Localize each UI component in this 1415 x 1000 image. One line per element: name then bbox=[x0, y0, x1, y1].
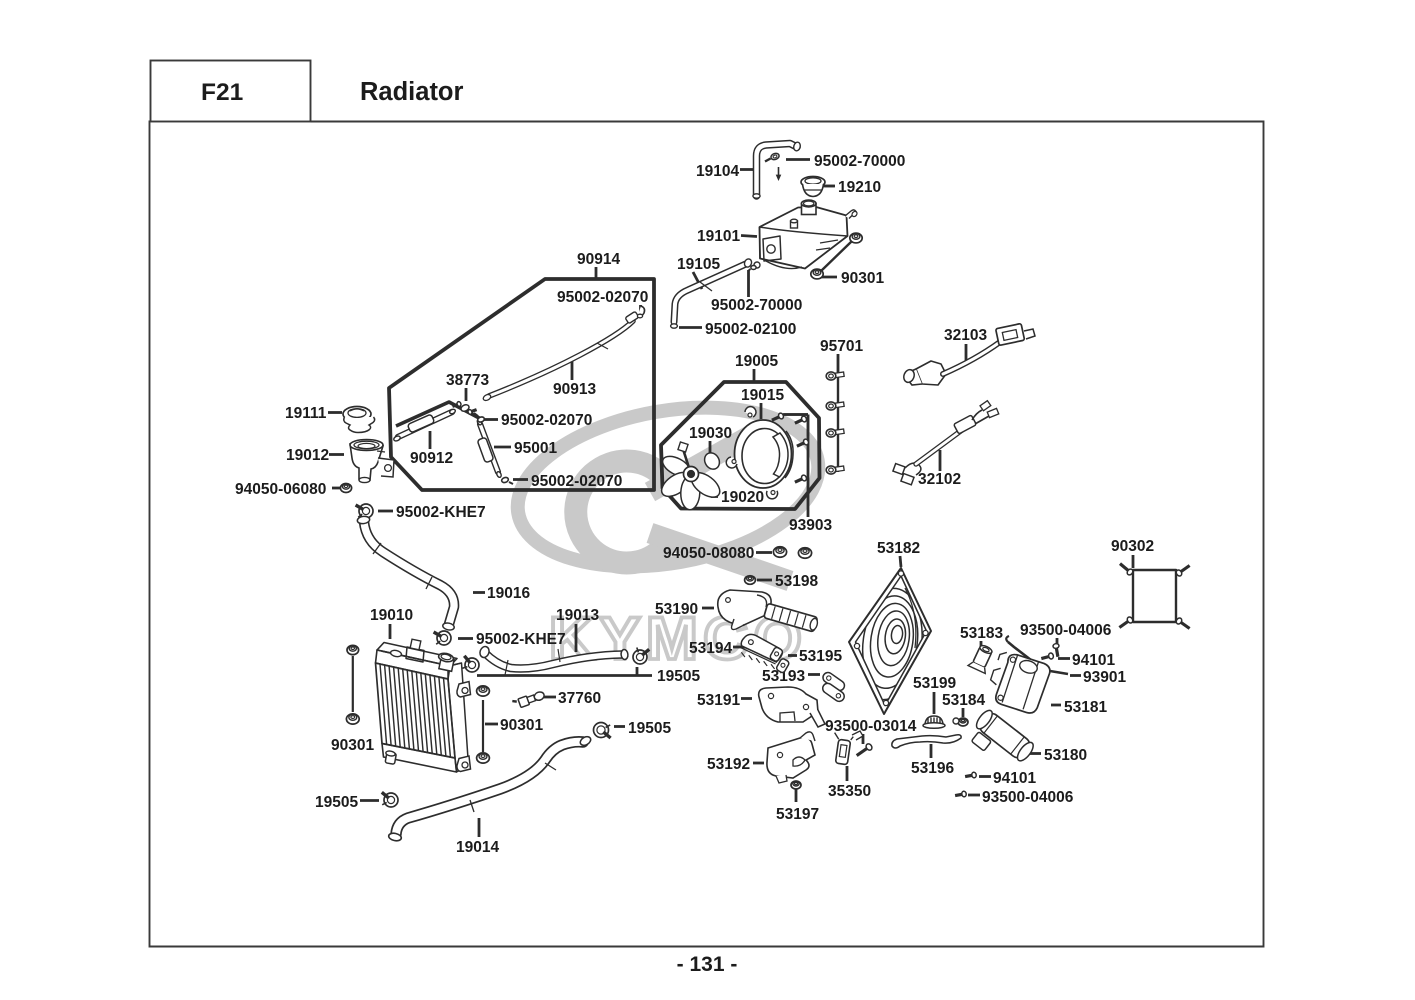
svg-text:19111: 19111 bbox=[285, 405, 327, 422]
svg-text:19010: 19010 bbox=[370, 607, 413, 624]
svg-text:90913: 90913 bbox=[553, 381, 596, 398]
svg-text:90302: 90302 bbox=[1111, 538, 1154, 555]
svg-text:32103: 32103 bbox=[944, 327, 987, 344]
svg-text:38773: 38773 bbox=[446, 372, 489, 389]
svg-text:19020: 19020 bbox=[721, 489, 764, 506]
svg-text:95002-02070: 95002-02070 bbox=[557, 289, 648, 306]
svg-text:90912: 90912 bbox=[410, 450, 453, 467]
svg-text:93903: 93903 bbox=[789, 517, 832, 534]
svg-text:53183: 53183 bbox=[960, 625, 1003, 642]
svg-text:19505: 19505 bbox=[628, 720, 671, 737]
svg-text:19014: 19014 bbox=[456, 839, 499, 856]
svg-text:95002-KHE7: 95002-KHE7 bbox=[396, 504, 486, 521]
svg-text:19105: 19105 bbox=[677, 256, 720, 273]
svg-text:19505: 19505 bbox=[315, 794, 358, 811]
svg-text:53199: 53199 bbox=[913, 675, 956, 692]
svg-text:53192: 53192 bbox=[707, 756, 750, 773]
svg-text:53184: 53184 bbox=[942, 692, 985, 709]
svg-text:53191: 53191 bbox=[697, 692, 740, 709]
svg-text:94101: 94101 bbox=[993, 770, 1036, 787]
svg-text:90914: 90914 bbox=[577, 251, 620, 268]
svg-text:19210: 19210 bbox=[838, 179, 881, 196]
svg-text:93500-04006: 93500-04006 bbox=[1020, 622, 1112, 639]
svg-text:90301: 90301 bbox=[500, 717, 543, 734]
svg-text:93901: 93901 bbox=[1083, 669, 1126, 686]
svg-text:53180: 53180 bbox=[1044, 747, 1087, 764]
svg-text:53197: 53197 bbox=[776, 806, 819, 823]
svg-text:53198: 53198 bbox=[775, 573, 818, 590]
svg-text:19016: 19016 bbox=[487, 585, 530, 602]
svg-text:19101: 19101 bbox=[697, 228, 740, 245]
svg-text:19013: 19013 bbox=[556, 607, 599, 624]
svg-text:95002-02100: 95002-02100 bbox=[705, 321, 796, 338]
svg-text:94050-08080: 94050-08080 bbox=[663, 545, 754, 562]
svg-text:32102: 32102 bbox=[918, 471, 961, 488]
svg-text:95002-70000: 95002-70000 bbox=[814, 153, 905, 170]
svg-text:53196: 53196 bbox=[911, 760, 954, 777]
svg-text:53181: 53181 bbox=[1064, 699, 1107, 716]
svg-text:90301: 90301 bbox=[841, 270, 884, 287]
svg-text:19104: 19104 bbox=[696, 163, 739, 180]
svg-text:19012: 19012 bbox=[286, 447, 329, 464]
svg-text:93500-03014: 93500-03014 bbox=[825, 718, 917, 735]
svg-text:95701: 95701 bbox=[820, 338, 863, 355]
svg-text:90301: 90301 bbox=[331, 737, 374, 754]
svg-text:19505: 19505 bbox=[657, 668, 700, 685]
svg-text:95002-KHE7: 95002-KHE7 bbox=[476, 631, 566, 648]
svg-text:Radiator: Radiator bbox=[360, 78, 464, 106]
svg-text:19030: 19030 bbox=[689, 425, 732, 442]
svg-text:95002-02070: 95002-02070 bbox=[531, 473, 622, 490]
svg-text:53182: 53182 bbox=[877, 540, 920, 557]
svg-text:F21: F21 bbox=[201, 79, 243, 106]
svg-text:95002-70000: 95002-70000 bbox=[711, 297, 802, 314]
svg-text:94050-06080: 94050-06080 bbox=[235, 481, 326, 498]
svg-text:53190: 53190 bbox=[655, 601, 698, 618]
svg-text:53195: 53195 bbox=[799, 648, 842, 665]
svg-text:94101: 94101 bbox=[1072, 652, 1115, 669]
svg-text:95002-02070: 95002-02070 bbox=[501, 412, 592, 429]
svg-text:37760: 37760 bbox=[558, 690, 601, 707]
svg-text:- 131 -: - 131 - bbox=[677, 953, 738, 976]
svg-text:95001: 95001 bbox=[514, 440, 557, 457]
svg-text:35350: 35350 bbox=[828, 783, 871, 800]
svg-text:19005: 19005 bbox=[735, 353, 778, 370]
svg-text:53194: 53194 bbox=[689, 640, 732, 657]
svg-text:93500-04006: 93500-04006 bbox=[982, 789, 1074, 806]
svg-text:19015: 19015 bbox=[741, 387, 784, 404]
